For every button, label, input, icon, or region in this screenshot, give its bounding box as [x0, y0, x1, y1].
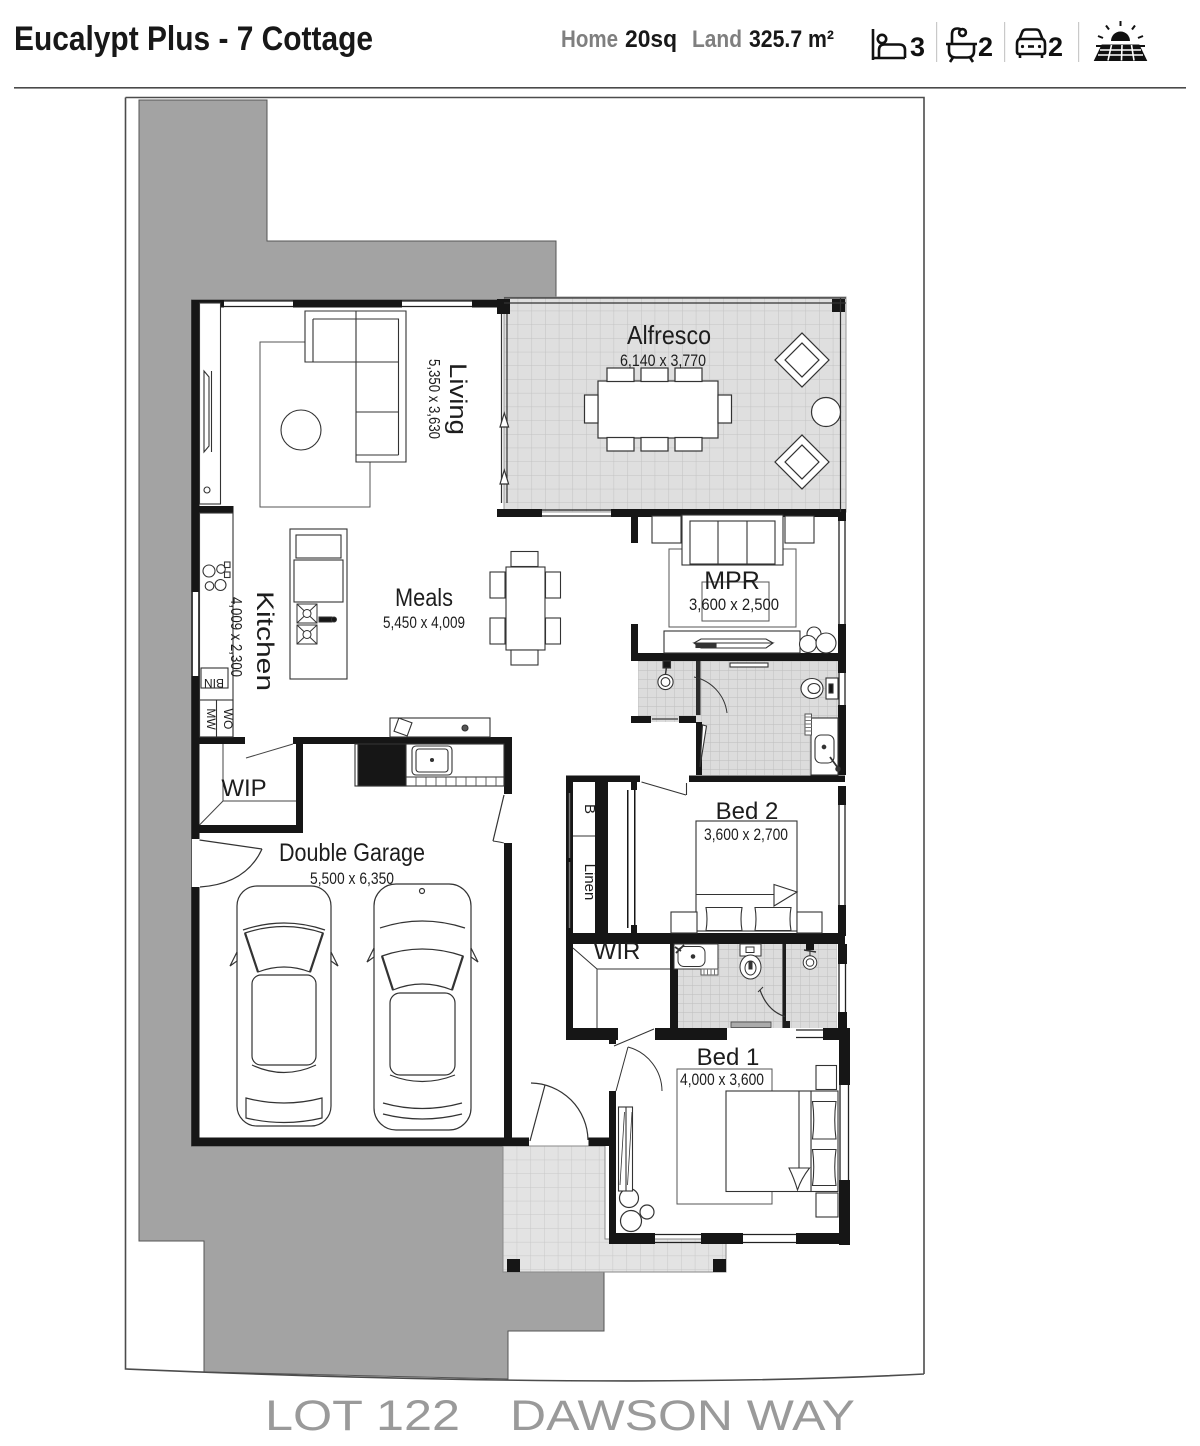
- svg-text:Double Garage: Double Garage: [279, 839, 425, 867]
- svg-text:4,000 x 3,600: 4,000 x 3,600: [680, 1071, 764, 1089]
- svg-text:Living: Living: [444, 363, 471, 435]
- svg-text:MW: MW: [204, 708, 218, 730]
- svg-text:20sq: 20sq: [625, 26, 677, 53]
- svg-text:5,450 x 4,009: 5,450 x 4,009: [383, 614, 465, 632]
- svg-text:Meals: Meals: [395, 584, 453, 612]
- svg-text:2: 2: [1048, 32, 1063, 62]
- svg-text:LOT 122: LOT 122: [265, 1392, 460, 1440]
- svg-text:B: B: [581, 804, 598, 814]
- svg-text:3: 3: [910, 32, 925, 62]
- svg-text:3,600 x 2,700: 3,600 x 2,700: [704, 826, 788, 844]
- svg-text:Bed 2: Bed 2: [716, 798, 779, 825]
- svg-text:6,140 x 3,770: 6,140 x 3,770: [620, 352, 706, 370]
- svg-text:WIP: WIP: [221, 775, 266, 802]
- svg-text:Eucalypt Plus - 7 Cottage: Eucalypt Plus - 7 Cottage: [14, 20, 373, 58]
- svg-text:Linen: Linen: [581, 864, 598, 901]
- svg-text:DAWSON WAY: DAWSON WAY: [510, 1392, 855, 1440]
- svg-text:5,350 x 3,630: 5,350 x 3,630: [425, 359, 442, 439]
- svg-text:Home: Home: [561, 26, 618, 53]
- svg-text:325.7 m²: 325.7 m²: [749, 26, 834, 53]
- svg-text:Land: Land: [692, 26, 742, 53]
- svg-text:BIN: BIN: [204, 676, 224, 690]
- svg-text:Alfresco: Alfresco: [627, 320, 711, 350]
- svg-text:4,009 x 2,300: 4,009 x 2,300: [227, 597, 244, 677]
- svg-text:WIR: WIR: [594, 938, 641, 965]
- svg-text:Kitchen: Kitchen: [251, 591, 278, 691]
- svg-text:MPR: MPR: [704, 567, 760, 595]
- svg-text:2: 2: [978, 32, 993, 62]
- svg-text:WO: WO: [221, 709, 235, 730]
- svg-text:3,600 x 2,500: 3,600 x 2,500: [689, 596, 779, 614]
- svg-text:5,500 x 6,350: 5,500 x 6,350: [310, 870, 394, 888]
- svg-text:Bed 1: Bed 1: [697, 1044, 760, 1071]
